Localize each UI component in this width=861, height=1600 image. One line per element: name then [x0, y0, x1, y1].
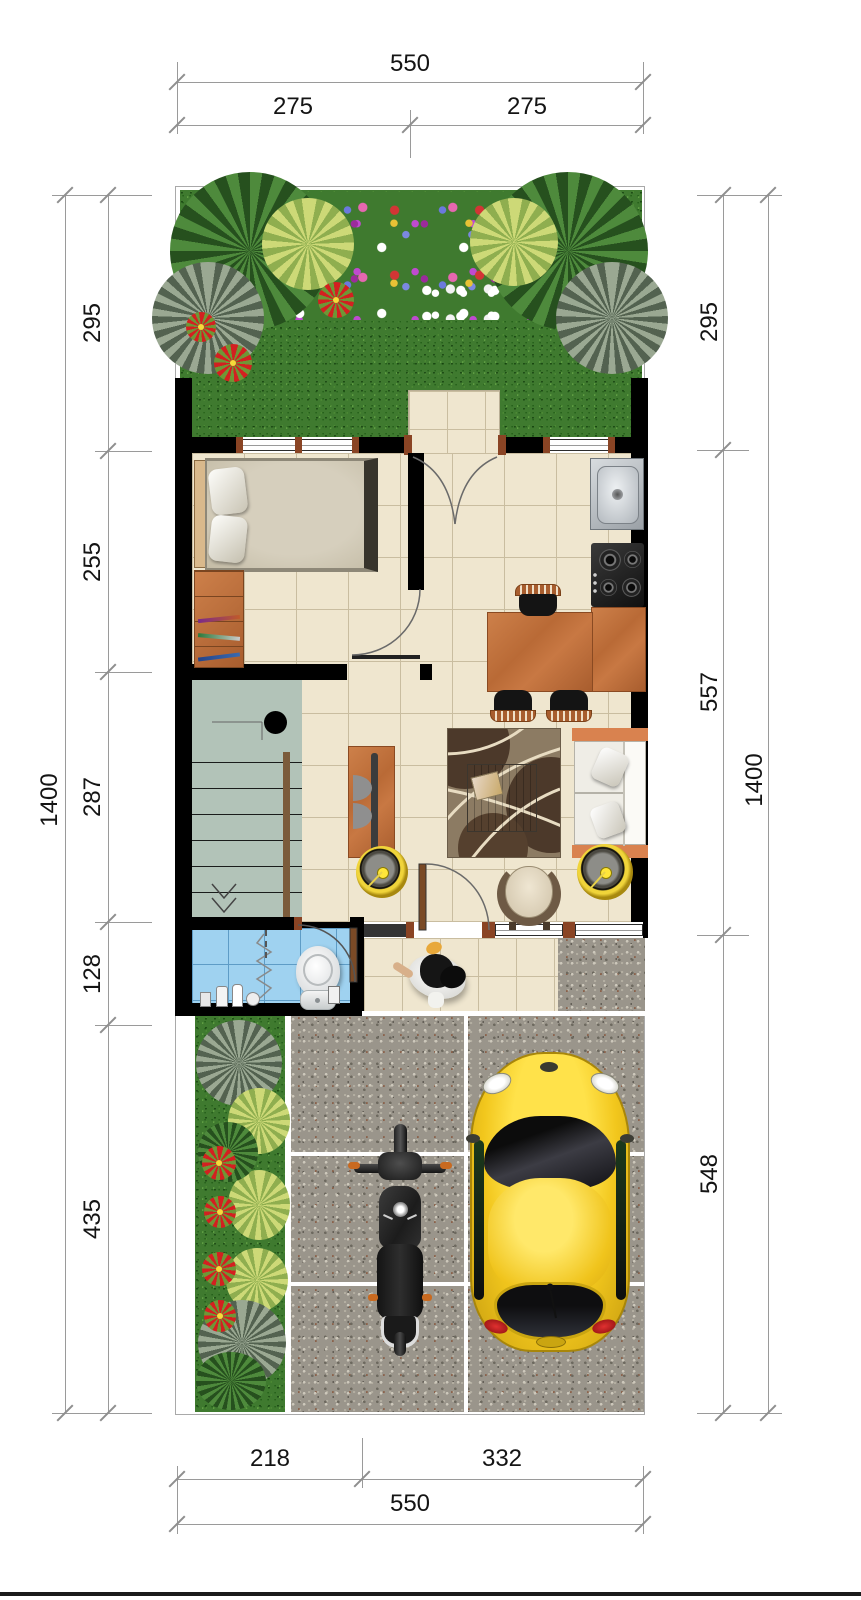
person [390, 940, 480, 1012]
dim-line-bottom-total [177, 1524, 643, 1525]
wall-top [500, 437, 548, 453]
kitchen-counter [591, 607, 646, 692]
red-flower [202, 1146, 236, 1180]
kitchen-stove [591, 543, 644, 607]
stove-knobs [593, 571, 597, 597]
wall-bathroom-north [192, 917, 300, 930]
wall-top [610, 437, 648, 453]
dim-label-right-3: 548 [698, 1154, 722, 1194]
dining-table [487, 612, 593, 692]
living-window [575, 924, 643, 936]
carport-joint [464, 1016, 468, 1412]
kitchen-sink [590, 458, 644, 530]
plant [196, 1352, 266, 1410]
bed [194, 458, 378, 572]
dim-ext-line [95, 451, 152, 452]
tv-bracket [353, 775, 372, 801]
red-flower [214, 344, 252, 382]
shrub [470, 198, 558, 286]
dim-label-left-4: 128 [81, 954, 105, 994]
dim-line-bottom-segments [177, 1479, 643, 1480]
armchair [497, 862, 561, 926]
dim-label-right-2: 557 [698, 672, 722, 712]
page-bottom-rule [0, 1592, 861, 1596]
entry-path [408, 390, 500, 455]
car [470, 1052, 630, 1352]
sofa [572, 728, 648, 858]
bed-pillow [208, 514, 249, 564]
stove-burner [622, 578, 641, 597]
dim-label-right-total: 1400 [743, 753, 767, 806]
bed-pillow [207, 466, 248, 516]
front-door-post [482, 922, 490, 938]
bath-fixture [328, 986, 340, 1004]
shrub [262, 198, 354, 290]
dim-ext-line [95, 672, 152, 673]
red-flower [318, 282, 354, 318]
sink-drain [612, 489, 623, 500]
garden-door-post [498, 435, 506, 455]
kitchen-window [548, 439, 610, 451]
dim-line-top-total [177, 82, 643, 83]
dim-label-top-total: 550 [390, 52, 430, 76]
stair-handrail [283, 752, 290, 917]
dim-label-top-right: 275 [507, 95, 547, 119]
dim-label-left-1: 295 [81, 303, 105, 343]
dim-label-top-left: 275 [273, 95, 313, 119]
carport-edge [362, 1011, 645, 1016]
wardrobe-items [198, 633, 240, 641]
dim-label-left-3: 287 [81, 777, 105, 817]
window-post [236, 437, 243, 453]
dim-ext-line [95, 1025, 152, 1026]
dim-ext-line [52, 1413, 152, 1414]
dim-label-left-2: 255 [81, 542, 105, 582]
window-post [543, 437, 550, 453]
wall-living-south-gray [364, 924, 412, 937]
sofa-cushions [574, 741, 646, 845]
window-post [295, 437, 302, 453]
stove-burner [599, 549, 621, 571]
wall-top [175, 437, 240, 453]
dining-chair [546, 690, 592, 722]
tv-screen [371, 753, 378, 853]
wardrobe [194, 570, 244, 668]
garden-door-post [404, 435, 412, 455]
dim-ext-line [410, 110, 411, 158]
red-flower [202, 1252, 236, 1286]
wall-top [356, 437, 408, 453]
dim-label-bottom-total: 550 [390, 1492, 430, 1516]
floor-speaker [356, 846, 408, 898]
stair-newel-column [264, 711, 287, 734]
dim-label-left-total: 1400 [38, 773, 62, 826]
dim-line-left-total [65, 195, 66, 1413]
dining-chair [490, 690, 536, 722]
dim-line-left-segments [108, 195, 109, 1413]
red-flower [186, 312, 216, 342]
coffee-table [467, 764, 537, 832]
motorcycle [348, 1124, 452, 1356]
magazine [471, 771, 504, 801]
dim-line-right-segments [723, 195, 724, 1413]
wall-bathroom-east [350, 917, 364, 1010]
dim-line-right-total [768, 195, 769, 1413]
sofa-pillow [588, 800, 627, 840]
tv-bracket [353, 803, 372, 829]
stove-burner [624, 551, 641, 568]
dining-chair [515, 584, 561, 614]
wall-left-exterior [175, 378, 192, 1015]
dim-label-bottom-2: 332 [482, 1447, 522, 1471]
red-flower [204, 1196, 236, 1228]
wardrobe-items [198, 615, 240, 623]
dim-ext-line [95, 922, 152, 923]
dim-label-right-1: 295 [698, 302, 722, 342]
wall-bedroom-south-post [420, 664, 432, 680]
side-gravel [558, 938, 645, 1016]
red-flower [204, 1300, 236, 1332]
dim-label-bottom-1: 218 [250, 1447, 290, 1471]
floor-speaker [577, 844, 633, 900]
stove-burner [600, 579, 617, 596]
front-door-post [406, 922, 414, 938]
shrub [556, 262, 668, 374]
floor-plan-canvas: 550 275 275 218 332 550 295 255 287 128 … [0, 0, 861, 1600]
sofa-frame-top [572, 728, 648, 741]
window-post [608, 437, 615, 453]
window-post [643, 922, 648, 938]
bath-accessories [200, 984, 260, 1006]
dim-ext-line [362, 1438, 363, 1488]
wall-bedroom-east [408, 453, 424, 590]
dim-label-left-5: 435 [81, 1199, 105, 1239]
wardrobe-items [198, 652, 240, 661]
window-post [563, 922, 575, 938]
tv-console [348, 746, 395, 858]
window-post [352, 437, 359, 453]
bath-door-post [294, 917, 302, 930]
dim-ext-line [52, 195, 152, 196]
